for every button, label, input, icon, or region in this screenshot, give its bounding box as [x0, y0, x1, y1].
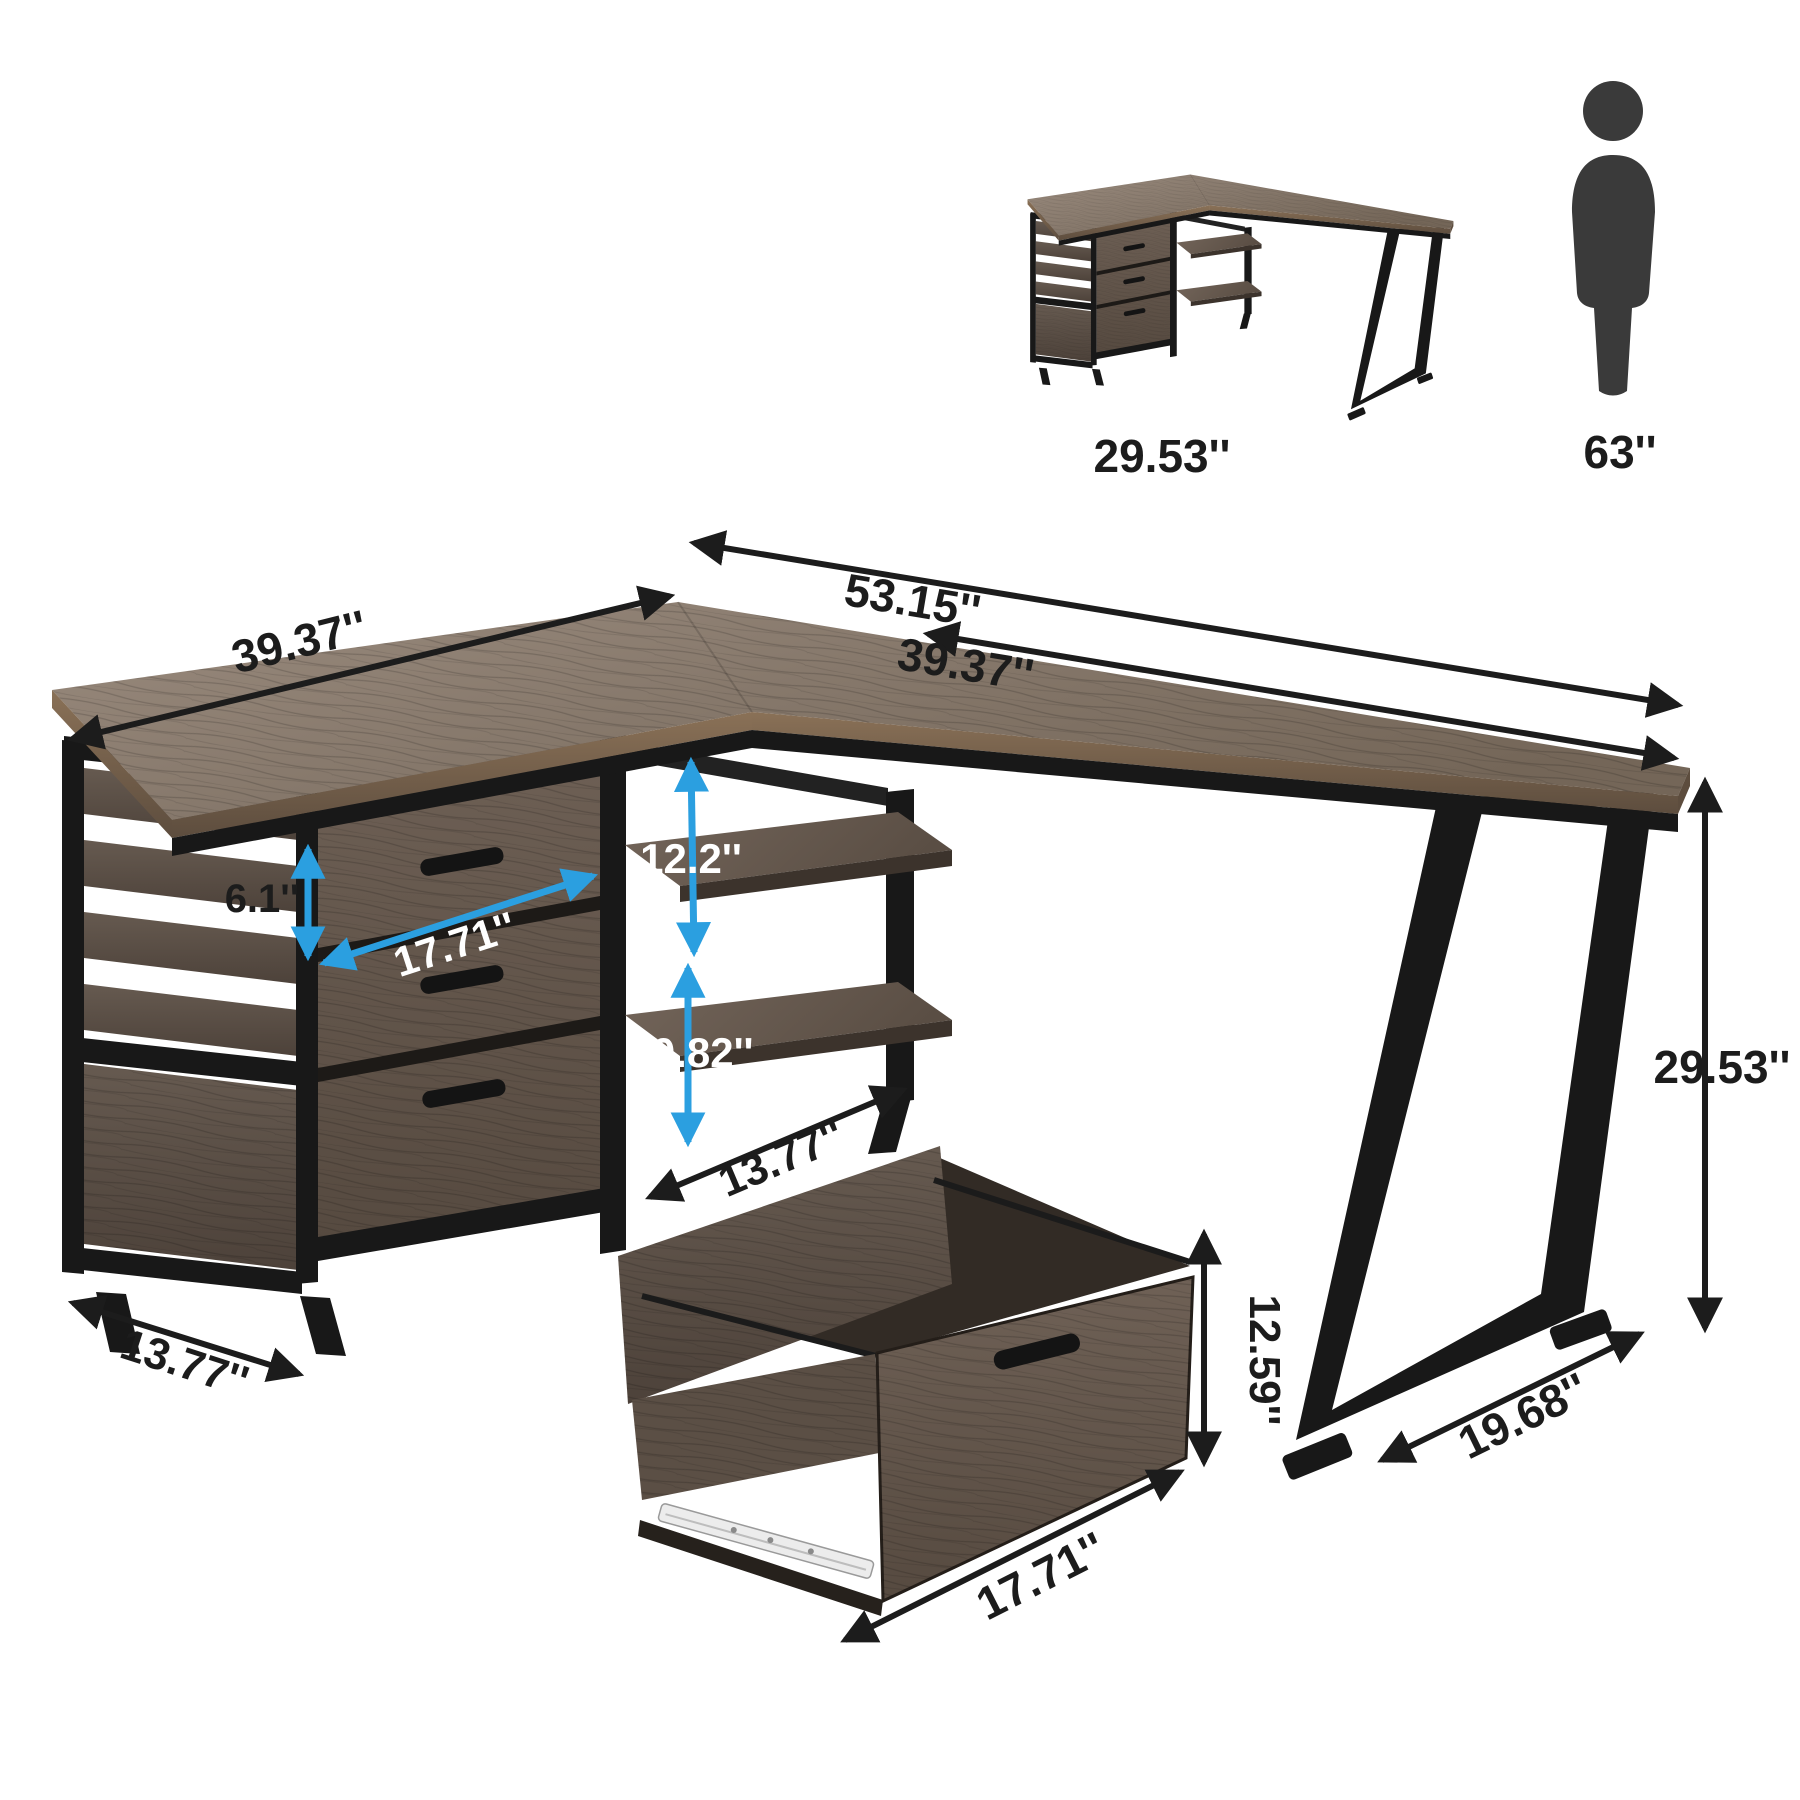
label-assembled-desk-height: 29.53''	[1094, 430, 1231, 482]
label-upper-shelf-height: 12.2''	[640, 835, 742, 882]
assembled-desk-thumbnail	[1028, 175, 1454, 421]
label-cabinet-depth: 13.77''	[115, 1320, 255, 1407]
label-top-drawer-height: 6.1''	[225, 877, 300, 921]
label-lower-shelf-height: 10.82''	[628, 1029, 753, 1076]
pulled-out-file-drawer	[618, 1146, 1193, 1616]
label-desk-height: 29.53''	[1654, 1041, 1791, 1093]
product-dimension-diagram: 53.15'' 39.37'' 39.37'' 6.1'' 17.71'' 12…	[0, 0, 1800, 1800]
label-person-height: 63''	[1583, 426, 1656, 478]
label-file-drawer-height: 12.59''	[1240, 1294, 1289, 1425]
desk-leg-frame	[1281, 790, 1654, 1481]
label-desktop-total-length: 53.15''	[841, 563, 985, 637]
standing-person-icon	[1572, 81, 1655, 396]
label-leg-base-depth: 19.68''	[1450, 1362, 1596, 1469]
